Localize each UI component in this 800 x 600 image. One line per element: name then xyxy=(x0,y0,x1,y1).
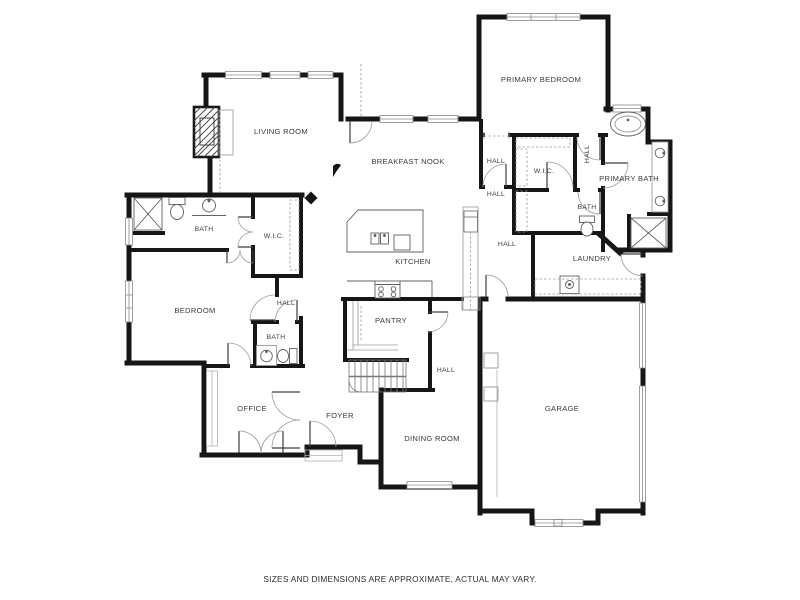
disclaimer-text: SIZES AND DIMENSIONS ARE APPROXIMATE, AC… xyxy=(263,574,536,584)
toilet-icon xyxy=(278,349,298,364)
floor-plan-drawing: LIVING ROOM BREAKFAST NOOK PRIMARY BEDRO… xyxy=(0,0,800,600)
room-label-kitchen: KITCHEN xyxy=(395,257,430,266)
shower-icon xyxy=(134,198,162,230)
plan-markers xyxy=(305,164,342,205)
room-label-hall-bedroom: HALL xyxy=(277,300,295,307)
room-label-dining-room: DINING ROOM xyxy=(404,434,460,443)
room-label-office: OFFICE xyxy=(237,404,267,413)
room-label-laundry: LAUNDRY xyxy=(573,254,611,263)
room-label-bedroom-wic: W.I.C. xyxy=(264,233,284,240)
room-label-primary-wic: W.I.C. xyxy=(534,168,554,175)
room-label-pantry: PANTRY xyxy=(375,316,407,325)
room-label-bedroom: BEDROOM xyxy=(174,306,215,315)
shower-icon xyxy=(631,218,666,248)
toilet-icon xyxy=(580,216,595,236)
room-label-garage: GARAGE xyxy=(545,404,579,413)
room-label-hall-vestibule: HALL xyxy=(487,158,505,165)
room-label-primary-hall-bath: BATH xyxy=(578,204,597,211)
room-label-primary-hall: HALL xyxy=(584,145,591,163)
room-label-foyer: FOYER xyxy=(326,411,354,420)
room-label-bath-main: BATH xyxy=(195,226,214,233)
kitchen-island xyxy=(347,210,423,252)
room-label-primary-bedroom: PRIMARY BEDROOM xyxy=(501,75,581,84)
sink-icon xyxy=(192,199,226,216)
hearth-outline xyxy=(219,110,233,155)
room-label-hall-rear: HALL xyxy=(437,367,455,374)
bathtub-icon xyxy=(611,112,646,136)
room-label-hall-mid: HALL xyxy=(487,191,505,198)
fireplace xyxy=(194,107,233,157)
room-label-hall-bath: BATH xyxy=(267,334,286,341)
toilet-icon xyxy=(169,198,185,220)
door-leaves xyxy=(227,121,643,453)
diamond-marker-icon xyxy=(305,192,318,205)
stairs xyxy=(349,360,406,392)
exterior-walls xyxy=(127,17,670,523)
stove-icon xyxy=(347,281,432,298)
camera-marker-icon xyxy=(333,164,341,177)
floor-plan-page: LIVING ROOM BREAKFAST NOOK PRIMARY BEDRO… xyxy=(0,0,800,600)
door-arcs xyxy=(227,121,643,453)
casework-solid xyxy=(207,132,510,498)
room-label-primary-bath: PRIMARY BATH xyxy=(599,174,659,183)
sink-icon xyxy=(257,346,277,366)
room-labels: LIVING ROOM BREAKFAST NOOK PRIMARY BEDRO… xyxy=(174,75,659,443)
room-label-breakfast-nook: BREAKFAST NOOK xyxy=(371,157,444,166)
room-label-hall-mudroom: HALL xyxy=(498,241,516,248)
room-label-living-room: LIVING ROOM xyxy=(254,127,308,136)
